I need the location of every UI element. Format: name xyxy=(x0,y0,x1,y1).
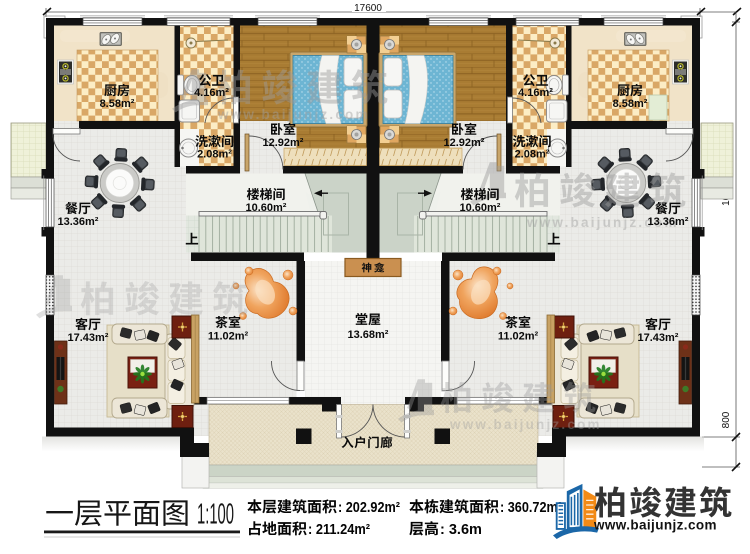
svg-text:4.16m²: 4.16m² xyxy=(518,87,553,99)
svg-text:13.36m²: 13.36m² xyxy=(58,216,99,228)
svg-text:8.58m²: 8.58m² xyxy=(100,98,135,110)
svg-text:17600: 17600 xyxy=(354,3,382,14)
svg-text:: 211.24m²: : 211.24m² xyxy=(308,522,370,538)
svg-text:10.60m²: 10.60m² xyxy=(460,202,501,214)
svg-text:11.02m²: 11.02m² xyxy=(208,331,249,343)
svg-text:2.08m²: 2.08m² xyxy=(197,149,232,161)
svg-text:1:100: 1:100 xyxy=(197,499,234,531)
svg-text:8.58m²: 8.58m² xyxy=(613,98,648,110)
svg-text:11.02m²: 11.02m² xyxy=(498,331,539,343)
svg-text:: 360.72m²: : 360.72m² xyxy=(500,500,562,516)
svg-text:www.baijunjz.com: www.baijunjz.com xyxy=(217,107,370,122)
svg-text:4.16m²: 4.16m² xyxy=(194,87,229,99)
svg-text:13.36m²: 13.36m² xyxy=(648,216,689,228)
svg-text:17.43m²: 17.43m² xyxy=(638,332,679,344)
svg-text:13.68m²: 13.68m² xyxy=(348,329,389,341)
svg-text:www.baijunjz.com: www.baijunjz.com xyxy=(593,518,717,533)
svg-text:: 3.6m: : 3.6m xyxy=(440,522,482,538)
svg-text:: 202.92m²: : 202.92m² xyxy=(338,500,400,516)
svg-text:10.60m²: 10.60m² xyxy=(246,202,287,214)
svg-text:12.92m²: 12.92m² xyxy=(263,137,304,149)
svg-text:www.baijunjz.com: www.baijunjz.com xyxy=(449,417,602,432)
svg-text:800: 800 xyxy=(721,411,732,428)
svg-text:17.43m²: 17.43m² xyxy=(68,332,109,344)
svg-text:2.08m²: 2.08m² xyxy=(515,149,550,161)
svg-text:12.92m²: 12.92m² xyxy=(444,137,485,149)
